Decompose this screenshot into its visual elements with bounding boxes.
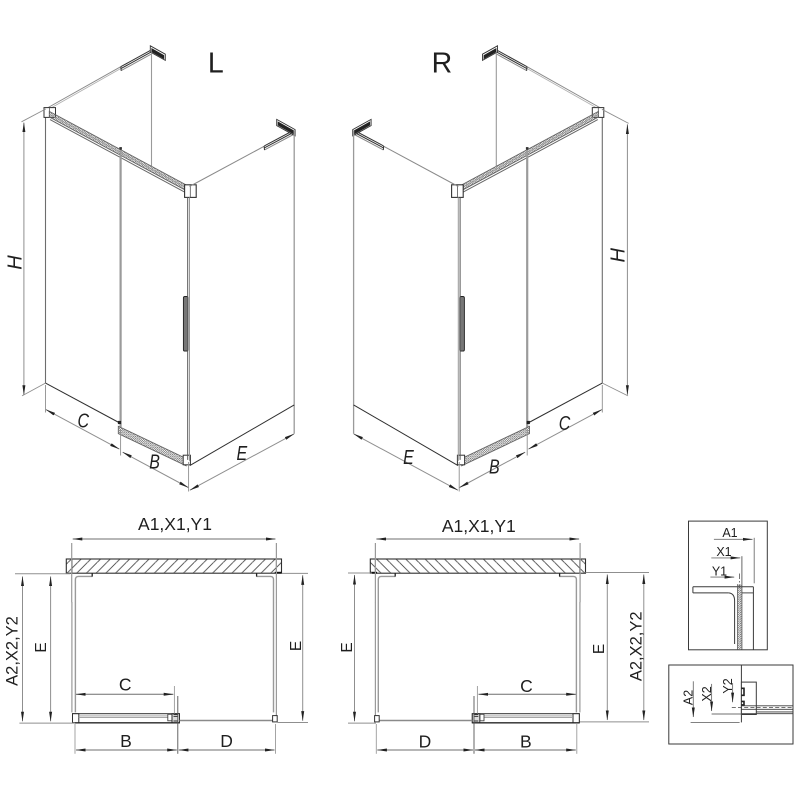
svg-text:C: C <box>119 675 132 695</box>
svg-text:E: E <box>288 641 305 651</box>
svg-text:E: E <box>591 644 608 654</box>
svg-text:A2,X2,Y2: A2,X2,Y2 <box>627 611 645 681</box>
svg-text:E: E <box>33 642 50 652</box>
svg-text:C: C <box>559 412 571 434</box>
svg-text:H: H <box>608 248 630 263</box>
svg-text:A1,X1,Y1: A1,X1,Y1 <box>138 514 212 534</box>
svg-text:D: D <box>419 732 432 752</box>
svg-text:A1,X1,Y1: A1,X1,Y1 <box>442 516 516 536</box>
svg-text:X1: X1 <box>716 545 731 559</box>
svg-text:L: L <box>208 48 224 80</box>
svg-text:C: C <box>520 676 533 696</box>
svg-text:B: B <box>489 456 500 478</box>
svg-text:A1: A1 <box>722 526 737 540</box>
svg-text:B: B <box>149 451 160 473</box>
svg-text:E: E <box>339 642 356 652</box>
svg-text:Y1: Y1 <box>712 564 727 578</box>
svg-text:D: D <box>220 731 233 751</box>
svg-text:R: R <box>432 48 453 80</box>
svg-text:C: C <box>78 410 90 432</box>
svg-text:A2,X2,Y2: A2,X2,Y2 <box>3 616 21 686</box>
svg-text:E: E <box>403 446 414 468</box>
svg-text:B: B <box>120 731 132 751</box>
svg-text:B: B <box>520 732 532 752</box>
svg-text:E: E <box>236 442 247 464</box>
svg-text:H: H <box>5 255 27 270</box>
